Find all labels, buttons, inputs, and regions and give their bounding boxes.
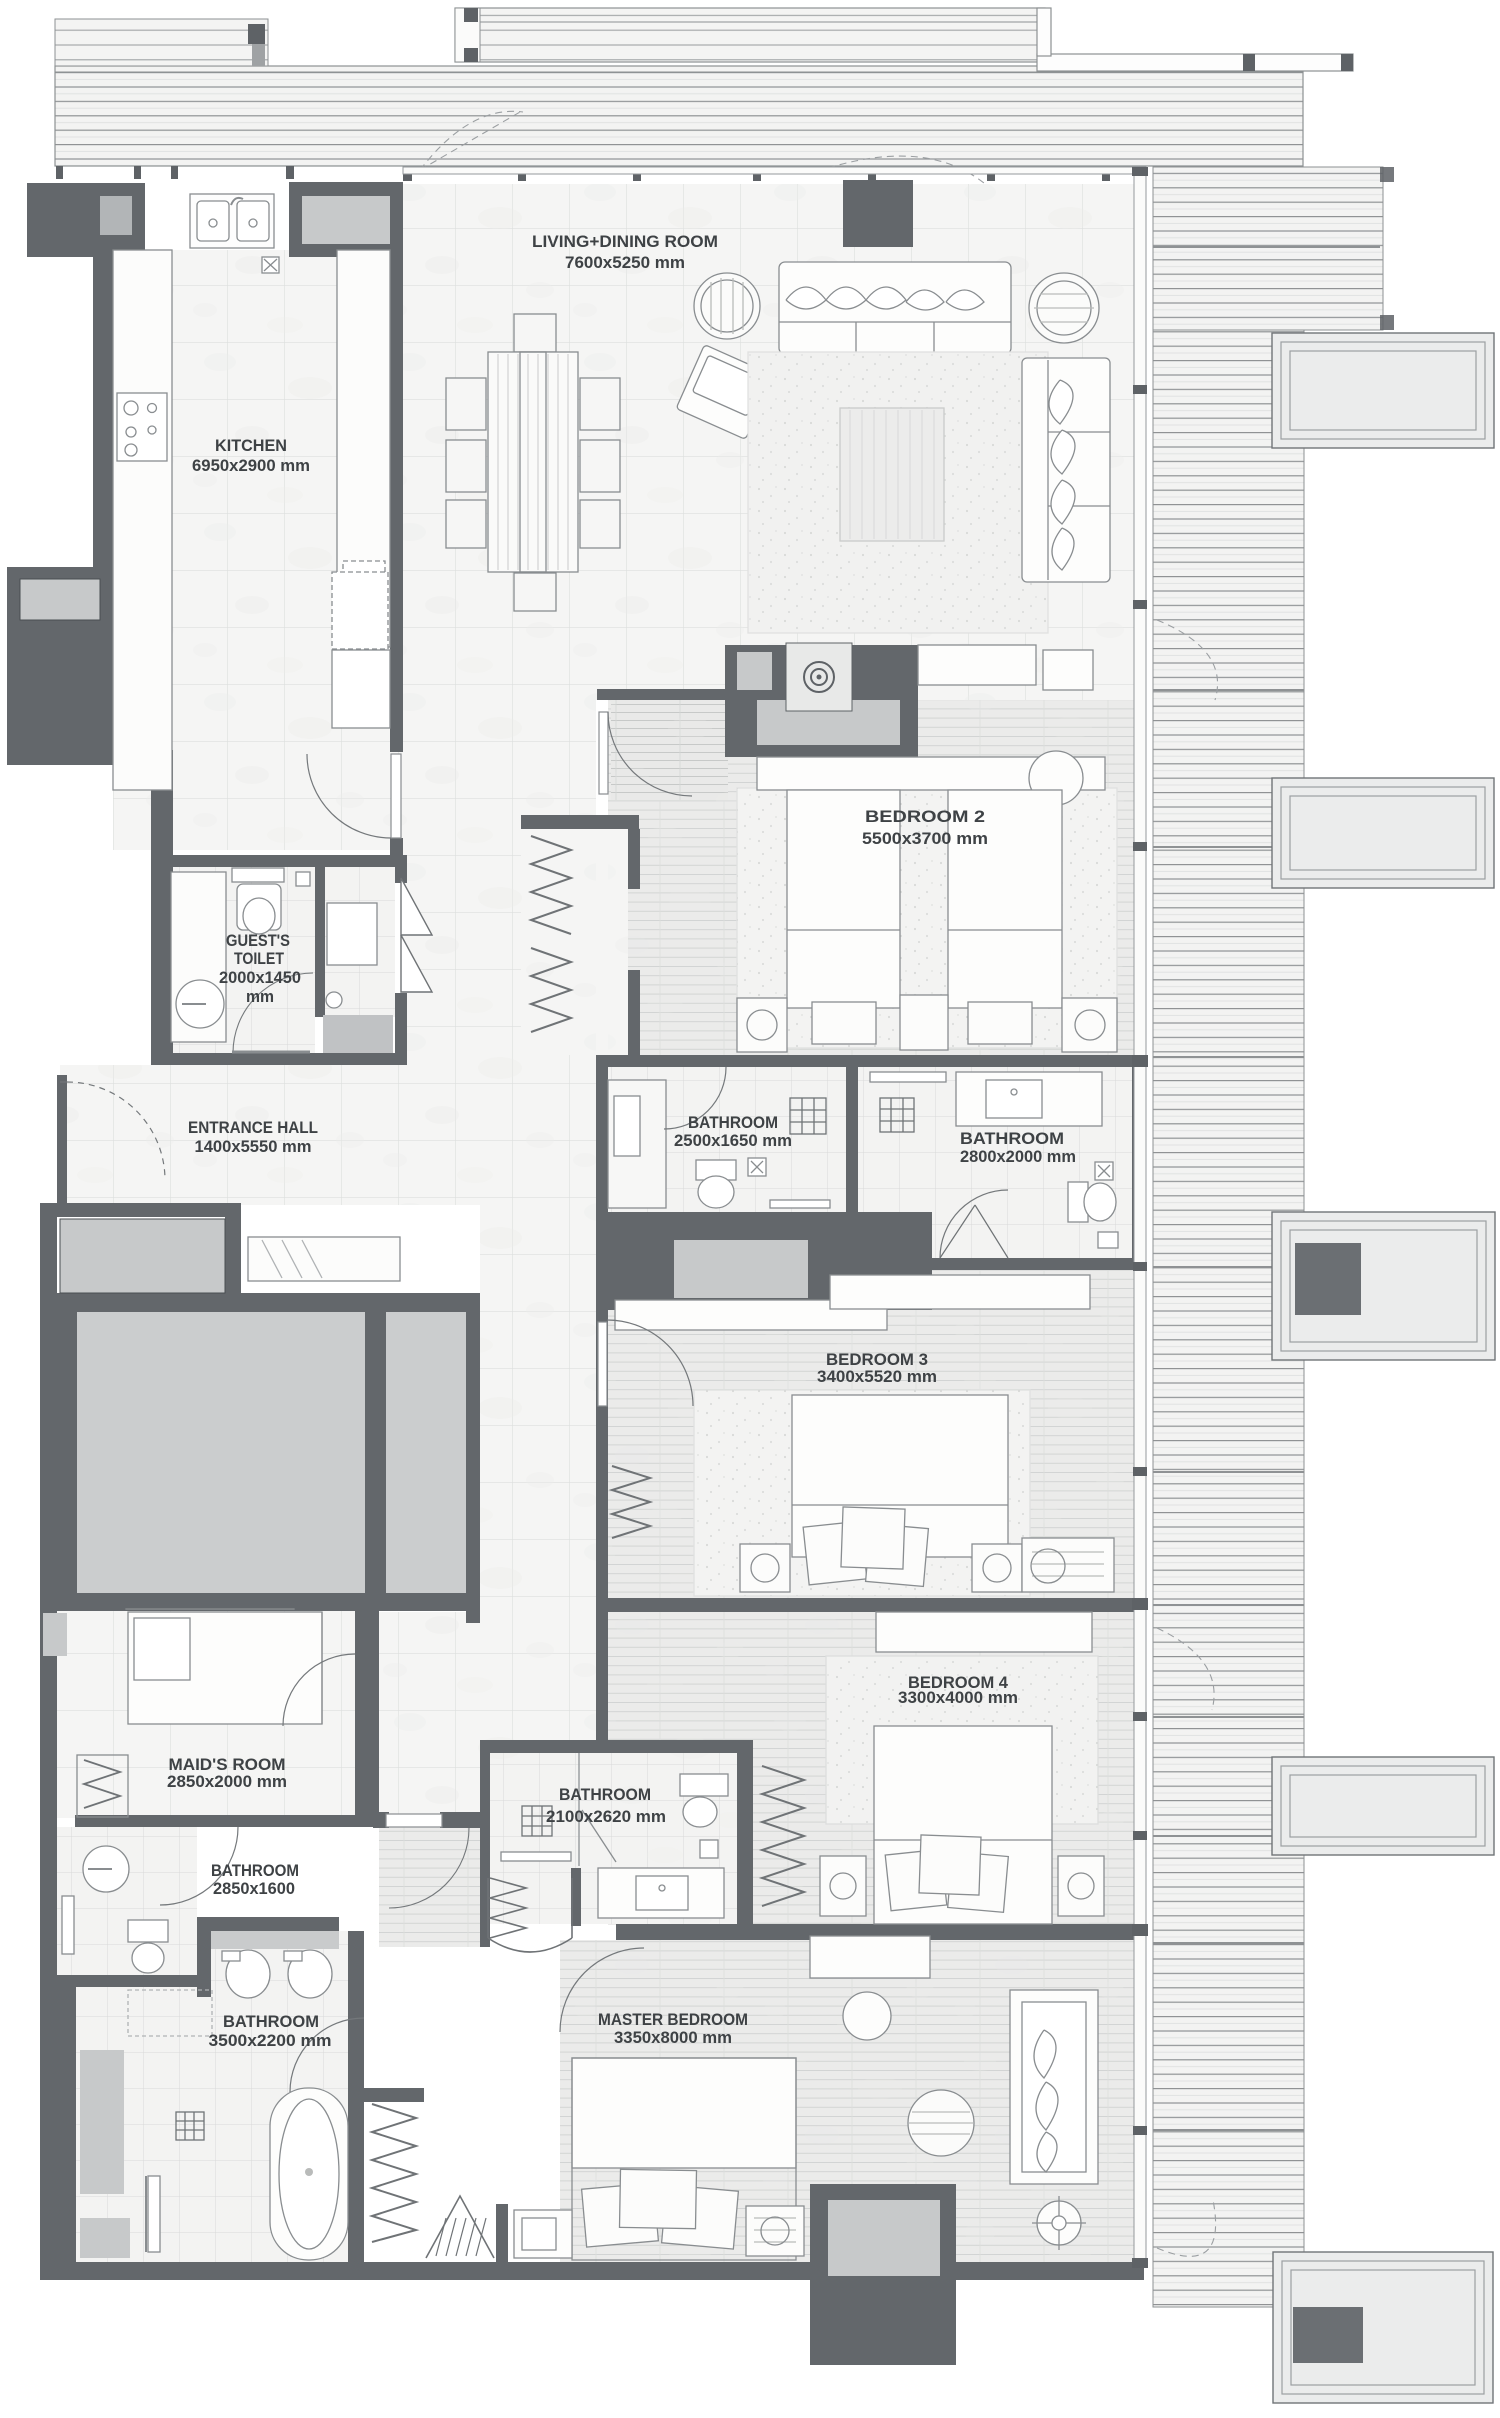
svg-text:BATHROOM: BATHROOM: [211, 1861, 299, 1880]
svg-text:BATHROOM: BATHROOM: [223, 2012, 319, 2031]
svg-text:2100x2620 mm: 2100x2620 mm: [546, 1807, 666, 1826]
svg-text:3350x8000 mm: 3350x8000 mm: [614, 2028, 732, 2047]
svg-text:2850x2000 mm: 2850x2000 mm: [167, 1772, 287, 1791]
svg-text:3500x2200 mm: 3500x2200 mm: [209, 2031, 332, 2050]
svg-text:1400x5550 mm: 1400x5550 mm: [195, 1137, 312, 1156]
svg-text:2500x1650 mm: 2500x1650 mm: [674, 1131, 792, 1150]
svg-text:2800x2000 mm: 2800x2000 mm: [960, 1147, 1076, 1166]
svg-text:MASTER BEDROOM: MASTER BEDROOM: [598, 2010, 748, 2029]
svg-text:ENTRANCE HALL: ENTRANCE HALL: [188, 1118, 318, 1137]
svg-text:3300x4000 mm: 3300x4000 mm: [898, 1688, 1018, 1707]
svg-text:BATHROOM: BATHROOM: [559, 1785, 651, 1804]
svg-text:7600x5250 mm: 7600x5250 mm: [565, 253, 685, 272]
svg-text:KITCHEN: KITCHEN: [215, 436, 287, 455]
svg-text:3400x5520 mm: 3400x5520 mm: [817, 1367, 937, 1386]
svg-text:6950x2900 mm: 6950x2900 mm: [192, 456, 310, 475]
svg-text:GUEST'S: GUEST'S: [226, 931, 290, 950]
svg-text:TOILET: TOILET: [234, 949, 285, 968]
svg-text:BATHROOM: BATHROOM: [688, 1113, 778, 1132]
svg-text:5500x3700 mm: 5500x3700 mm: [862, 829, 988, 848]
svg-text:2850x1600: 2850x1600: [213, 1879, 295, 1898]
svg-text:BEDROOM 2: BEDROOM 2: [865, 807, 985, 826]
svg-text:BATHROOM: BATHROOM: [960, 1129, 1064, 1148]
svg-text:2000x1450: 2000x1450: [219, 968, 301, 987]
svg-text:mm: mm: [246, 987, 274, 1006]
svg-text:LIVING+DINING ROOM: LIVING+DINING ROOM: [532, 232, 718, 251]
